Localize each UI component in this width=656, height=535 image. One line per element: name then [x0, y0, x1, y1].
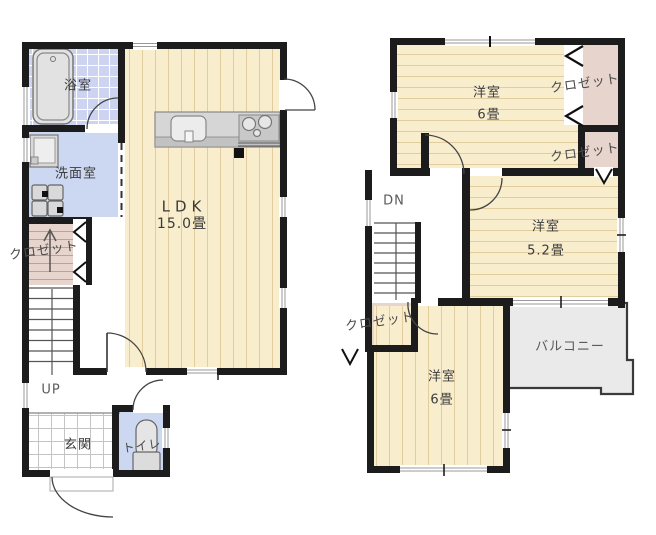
bedroom1-size-label: 6畳	[477, 109, 500, 122]
bedroom1-door-leaf	[421, 133, 429, 175]
floorplan-canvas: 浴室 洗面室 クロゼット LDK 15.0畳 UP 玄関 トイレ 洋室 6畳 ク…	[0, 0, 656, 535]
ldk-size-label: 15.0畳	[157, 217, 207, 231]
washroom-label: 洗面室	[55, 168, 97, 181]
kitchen-column	[234, 148, 244, 158]
bedroom2-label: 洋室	[532, 221, 560, 234]
bedroom2-size-label: 5.2畳	[527, 245, 565, 258]
ldk-entry-door-arc	[284, 79, 315, 110]
stairs-1f	[29, 288, 73, 375]
vanity-sink	[30, 135, 58, 167]
closet3-door-mark	[342, 349, 358, 364]
bedroom3-label: 洋室	[428, 371, 456, 384]
stairs-down-label: DN	[383, 195, 405, 208]
second-floor-rooms	[372, 45, 633, 466]
bedroom3-size-label: 6畳	[430, 394, 453, 407]
stairs-up-label: UP	[41, 384, 60, 397]
second-floor-plan	[342, 36, 633, 476]
entrance-label: 玄関	[64, 439, 92, 452]
bathroom-label: 浴室	[64, 80, 92, 93]
bedroom2-floor	[470, 176, 618, 300]
balcony-label: バルコニー	[535, 341, 605, 354]
bedroom3-floor	[374, 306, 503, 466]
entrance-porch	[50, 477, 113, 491]
ldk-label: LDK	[162, 200, 207, 215]
bedroom1-label: 洋室	[473, 87, 501, 100]
